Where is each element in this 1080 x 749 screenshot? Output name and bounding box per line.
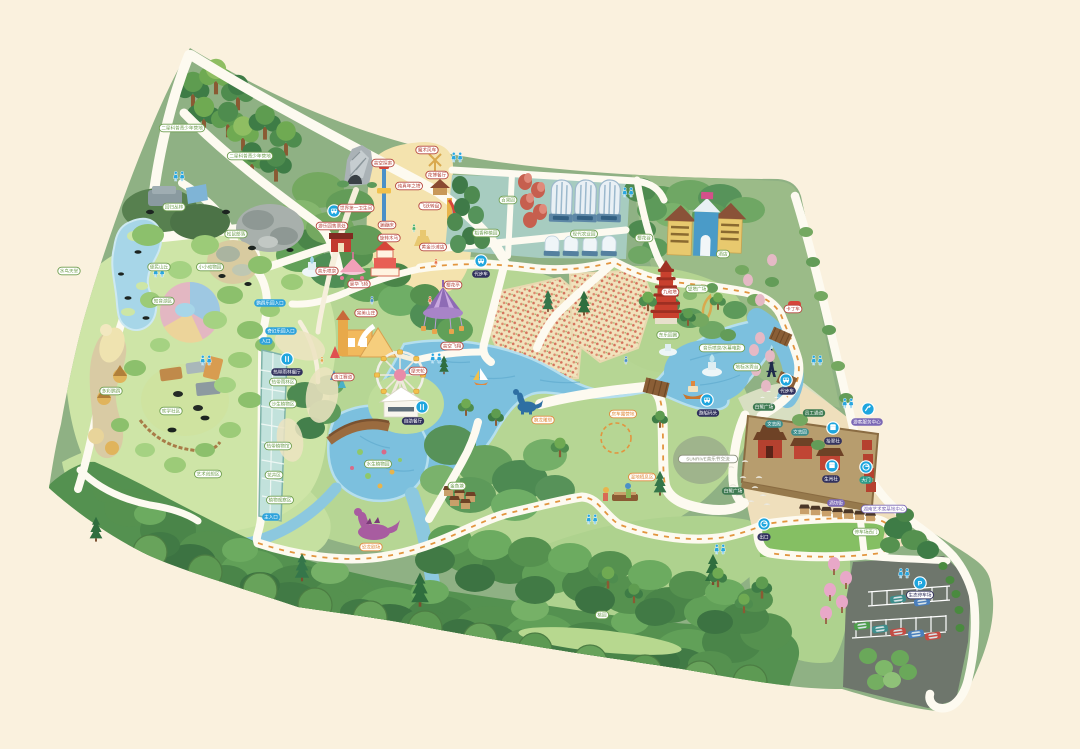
svg-text:便民山丘: 便民山丘 [150, 264, 169, 271]
svg-text:植物观察区: 植物观察区 [269, 497, 292, 504]
svg-text:音乐喷泉/水幕电影: 音乐喷泉/水幕电影 [703, 345, 741, 352]
svg-text:漓江赛道: 漓江赛道 [334, 374, 353, 381]
svg-text:房车露营地: 房车露营地 [612, 411, 635, 418]
svg-text:文志园: 文志园 [793, 429, 807, 436]
svg-text:恐龙剧场: 恐龙剧场 [362, 544, 381, 551]
svg-text:世界第一卫生间: 世界第一卫生间 [340, 205, 373, 212]
svg-text:白鹭广场: 白鹭广场 [724, 488, 743, 495]
svg-text:小小动物园: 小小动物园 [199, 264, 222, 271]
svg-text:奇幻乐园入口: 奇幻乐园入口 [267, 328, 295, 335]
svg-text:员工通道: 员工通道 [805, 410, 824, 417]
svg-text:金鱼塘: 金鱼塘 [450, 483, 464, 490]
svg-text:P: P [918, 580, 923, 587]
svg-text:二星科普青少年营地: 二星科普青少年营地 [229, 153, 271, 160]
svg-text:游客服务中心: 游客服务中心 [853, 419, 881, 426]
svg-text:鹦鹉乐园入口: 鹦鹉乐园入口 [256, 300, 284, 307]
svg-text:热带雨林餐厅: 热带雨林餐厅 [273, 369, 301, 376]
svg-text:自助餐厅: 自助餐厅 [404, 418, 423, 425]
svg-text:豪华飞椅: 豪华飞椅 [350, 281, 369, 288]
svg-text:纯真年之塔: 纯真年之塔 [398, 183, 421, 190]
svg-text:代步车: 代步车 [474, 271, 488, 278]
svg-text:白鹭广场: 白鹭广场 [755, 404, 774, 411]
svg-text:花博餐厅: 花博餐厅 [428, 172, 447, 179]
svg-text:文志阁: 文志阁 [767, 421, 781, 428]
svg-text:水生植物园: 水生植物园 [367, 461, 390, 468]
svg-text:完美山庄: 完美山庄 [357, 310, 376, 317]
svg-text:酒坊街: 酒坊街 [829, 500, 843, 507]
svg-text:地标水秀台: 地标水秀台 [736, 364, 759, 371]
svg-text:艺术创想区: 艺术创想区 [197, 471, 220, 478]
svg-text:主入口: 主入口 [264, 514, 278, 521]
svg-text:高空探索: 高空探索 [374, 160, 393, 167]
svg-text:高空飞翔: 高空飞翔 [443, 343, 462, 350]
svg-text:望塔广场: 望塔广场 [688, 286, 707, 293]
svg-text:大门: 大门 [861, 477, 871, 484]
svg-text:现代农业园: 现代农业园 [573, 231, 596, 238]
svg-text:二星科普青少年营地: 二星科普青少年营地 [161, 125, 203, 132]
svg-text:游船码头: 游船码头 [699, 410, 718, 417]
svg-text:SUNRIVE音乐节交流: SUNRIVE音乐节交流 [686, 456, 730, 463]
svg-text:代步车: 代步车 [780, 388, 794, 395]
svg-text:热带雨林区: 热带雨林区 [272, 379, 295, 386]
svg-text:沙生植物区: 沙生植物区 [272, 401, 295, 408]
svg-text:魔术风车: 魔术风车 [418, 147, 437, 154]
svg-text:拾翠社: 拾翠社 [826, 438, 840, 445]
svg-text:热带植物馆: 热带植物馆 [267, 443, 290, 450]
svg-text:酒店: 酒店 [718, 251, 728, 258]
svg-text:水鸟天堂: 水鸟天堂 [60, 268, 79, 275]
svg-text:知音湖区: 知音湖区 [154, 298, 173, 305]
svg-text:出口: 出口 [759, 534, 769, 541]
svg-text:桃园: 桃园 [597, 612, 607, 619]
svg-text:九和塔: 九和塔 [663, 289, 677, 296]
svg-text:腕龙雕塑: 腕龙雕塑 [534, 417, 553, 424]
svg-text:生肖社: 生肖社 [824, 476, 838, 483]
svg-text:回归丛林: 回归丛林 [165, 204, 184, 211]
svg-text:多彩鹦鹉: 多彩鹦鹉 [102, 388, 121, 395]
svg-text:卡丁车: 卡丁车 [786, 306, 800, 313]
svg-text:花卉区: 花卉区 [267, 472, 281, 479]
svg-text:稻香种植园: 稻香种植园 [475, 230, 498, 237]
svg-text:东乐园圃: 东乐园圃 [659, 332, 678, 339]
svg-text:松鼠部落: 松鼠部落 [227, 231, 246, 238]
svg-text:樱花亭: 樱花亭 [446, 282, 460, 289]
svg-text:湖南艺术家基地中心: 湖南艺术家基地中心 [863, 506, 905, 513]
svg-text:停车场西门: 停车场西门 [855, 529, 878, 536]
svg-text:游乐园售票处: 游乐园售票处 [318, 223, 346, 230]
svg-text:湿地栖息区: 湿地栖息区 [631, 474, 654, 481]
svg-text:音乐喷泉: 音乐喷泉 [318, 268, 337, 275]
svg-text:飞跃转盘: 飞跃转盘 [421, 203, 440, 210]
svg-text:旋转木马: 旋转木马 [380, 235, 399, 242]
svg-text:黄金沙滩店: 黄金沙滩店 [422, 244, 445, 251]
svg-text:生态停车场: 生态停车场 [909, 592, 932, 599]
svg-text:欢学社区: 欢学社区 [162, 408, 181, 415]
svg-text:摩天轮: 摩天轮 [411, 368, 425, 375]
svg-text:樱花谷: 樱花谷 [637, 235, 651, 242]
svg-text:蹦蹦床: 蹦蹦床 [380, 222, 394, 229]
